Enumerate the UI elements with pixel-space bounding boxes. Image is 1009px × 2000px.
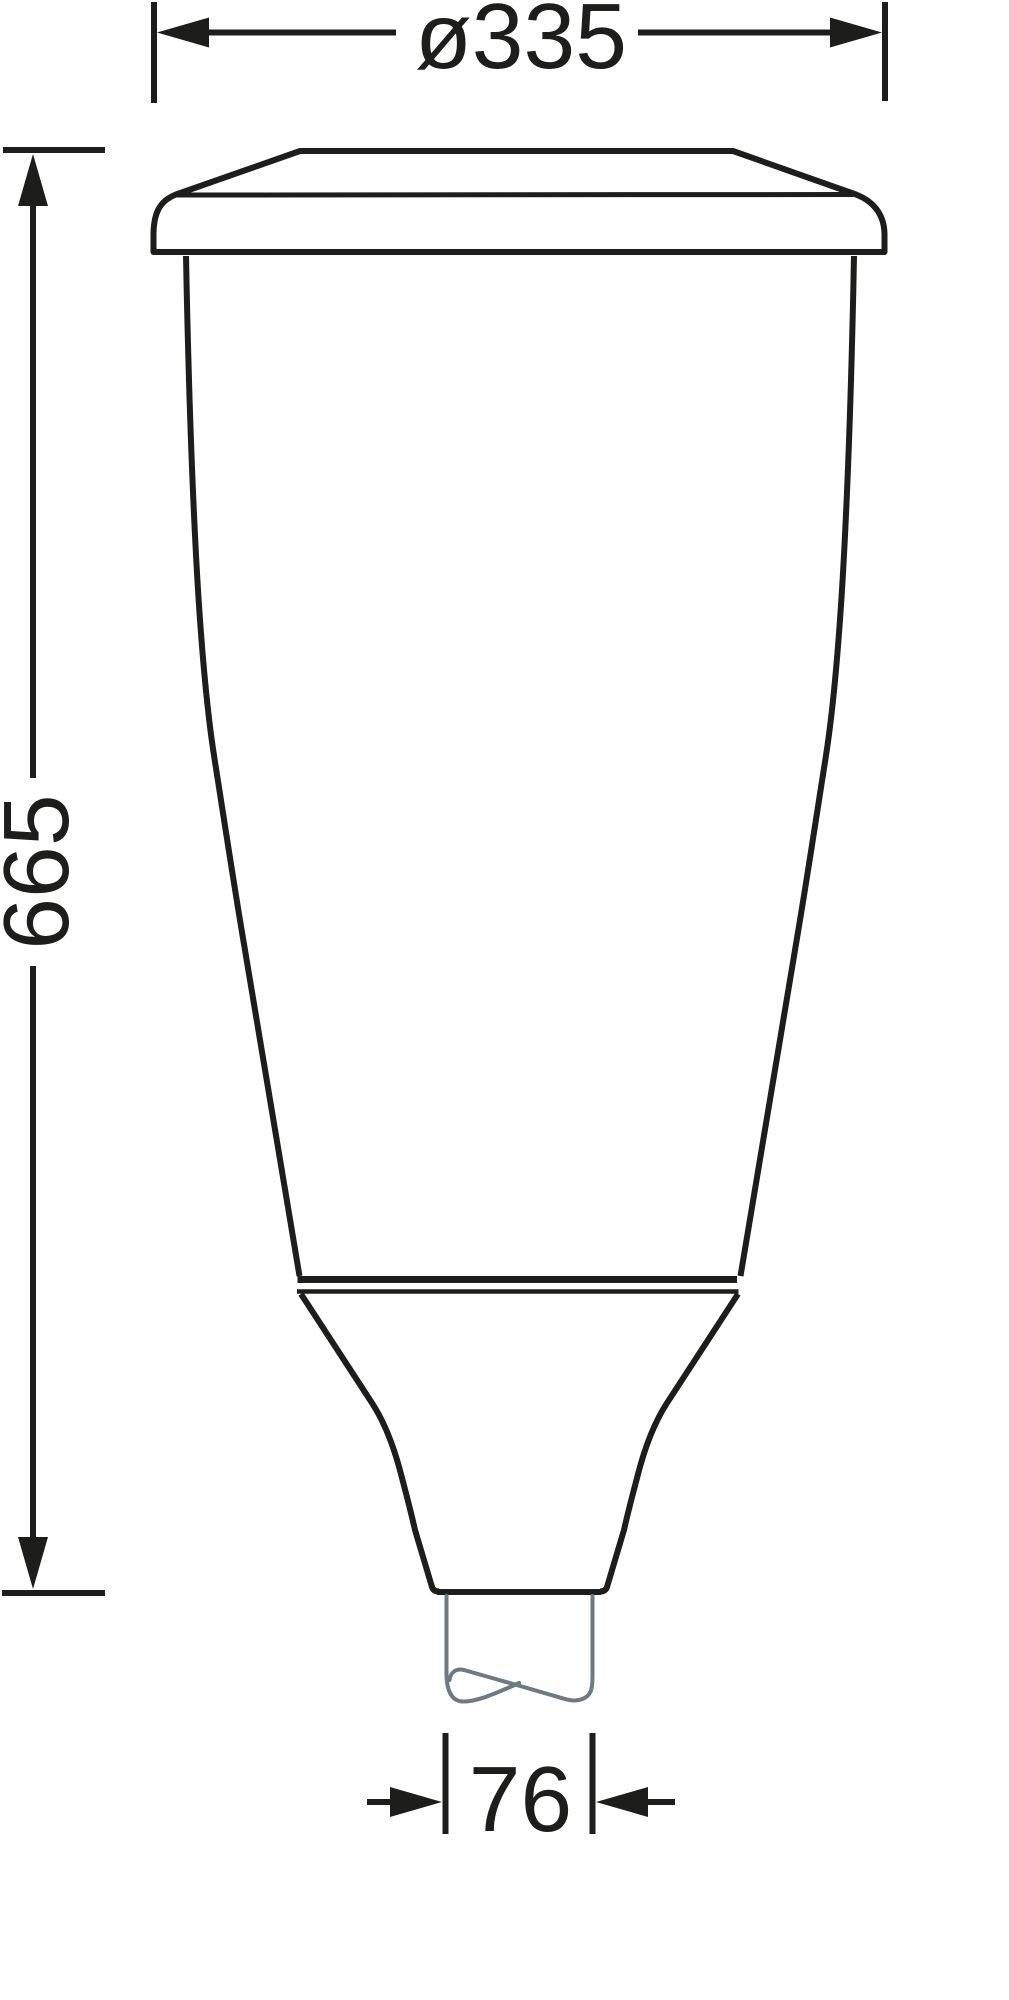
svg-text:ø335: ø335 — [415, 0, 627, 88]
svg-text:76: 76 — [469, 1747, 572, 1851]
svg-text:665: 665 — [0, 794, 88, 949]
